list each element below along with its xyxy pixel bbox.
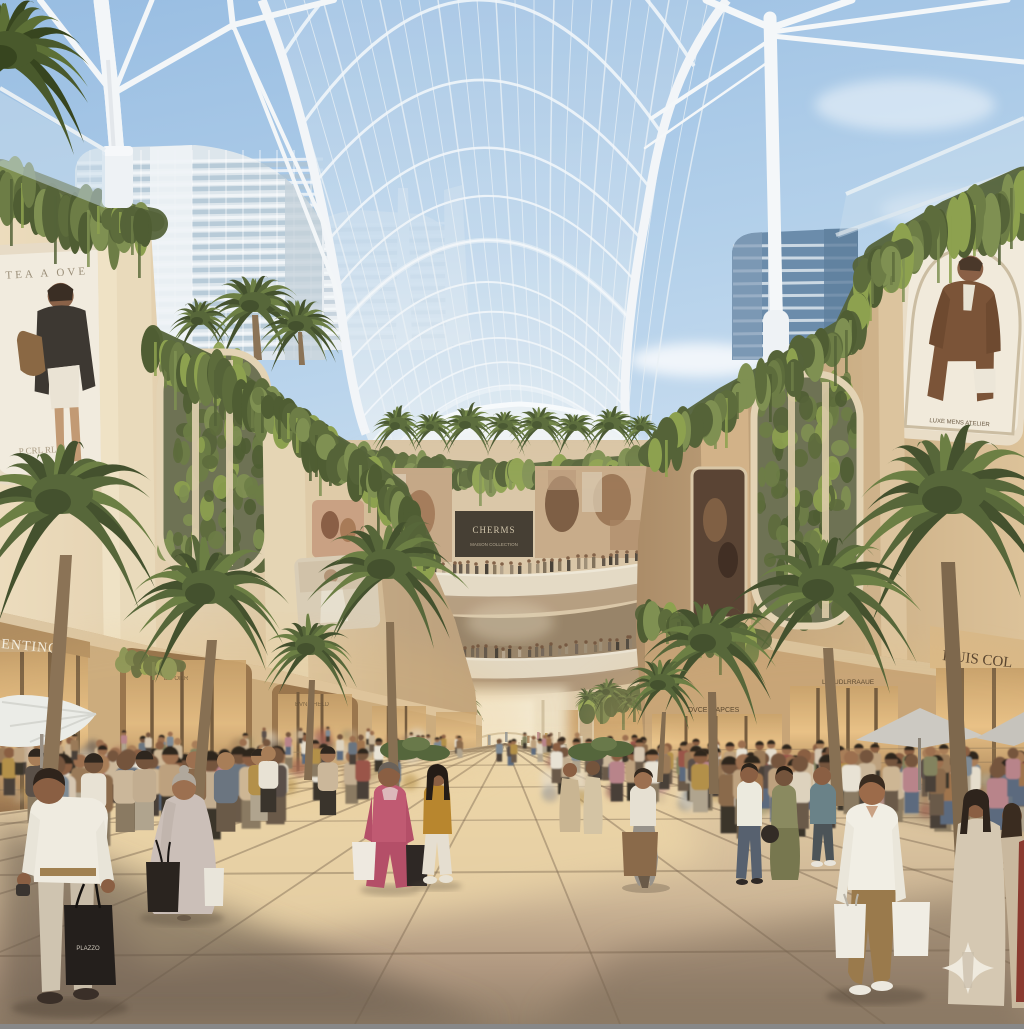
svg-text:PLAZZO: PLAZZO	[76, 946, 100, 952]
